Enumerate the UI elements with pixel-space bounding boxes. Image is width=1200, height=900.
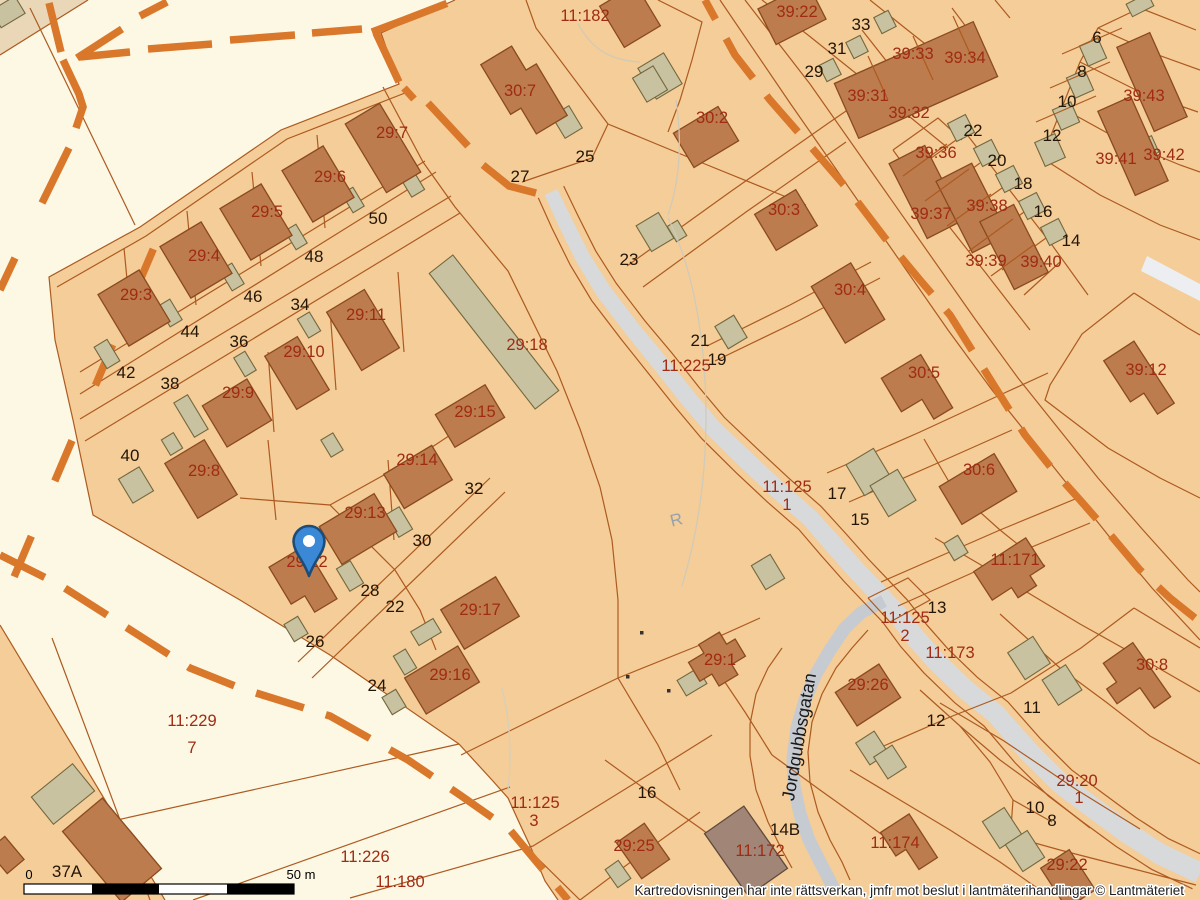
svg-text:39:31: 39:31 [847, 87, 888, 105]
svg-text:29:22: 29:22 [1046, 856, 1087, 874]
svg-text:30:4: 30:4 [834, 281, 866, 299]
svg-text:39:43: 39:43 [1123, 87, 1164, 105]
svg-text:29:14: 29:14 [396, 451, 437, 469]
svg-text:27: 27 [511, 167, 530, 186]
svg-text:30:8: 30:8 [1136, 656, 1168, 674]
svg-text:39:41: 39:41 [1095, 150, 1136, 168]
svg-text:26: 26 [306, 632, 325, 651]
svg-text:29:11: 29:11 [346, 306, 386, 324]
svg-text:39:40: 39:40 [1020, 253, 1061, 271]
svg-text:39:34: 39:34 [944, 49, 985, 67]
svg-text:29:15: 29:15 [454, 403, 495, 421]
svg-text:29:5: 29:5 [251, 203, 283, 221]
svg-text:12: 12 [927, 711, 946, 730]
svg-text:39:39: 39:39 [965, 252, 1006, 270]
svg-text:11:182: 11:182 [560, 7, 609, 25]
svg-text:20: 20 [988, 151, 1007, 170]
svg-text:29:4: 29:4 [188, 247, 220, 265]
svg-text:29:7: 29:7 [376, 124, 408, 142]
svg-text:18: 18 [1014, 174, 1033, 193]
svg-text:29:9: 29:9 [222, 384, 254, 402]
svg-text:50: 50 [369, 209, 388, 228]
svg-text:10: 10 [1058, 92, 1077, 111]
svg-text:25: 25 [576, 147, 595, 166]
svg-text:39:36: 39:36 [915, 144, 956, 162]
svg-text:30: 30 [413, 531, 432, 550]
svg-text:22: 22 [964, 121, 983, 140]
svg-text:22: 22 [386, 597, 405, 616]
svg-text:39:38: 39:38 [966, 197, 1007, 215]
svg-text:30:2: 30:2 [696, 109, 728, 127]
svg-text:46: 46 [244, 287, 263, 306]
svg-text:11:226: 11:226 [340, 848, 389, 866]
svg-text:39:42: 39:42 [1143, 146, 1184, 164]
svg-text:34: 34 [291, 295, 310, 314]
svg-text:29:17: 29:17 [459, 601, 500, 619]
svg-text:39:32: 39:32 [888, 104, 929, 122]
svg-text:6: 6 [1092, 28, 1101, 47]
svg-text:16: 16 [638, 783, 657, 802]
svg-text:31: 31 [828, 39, 847, 58]
svg-text:11:125: 11:125 [880, 609, 929, 627]
svg-text:29:25: 29:25 [613, 837, 654, 855]
svg-text:29:6: 29:6 [314, 168, 346, 186]
svg-text:42: 42 [117, 363, 136, 382]
svg-text:11:229: 11:229 [167, 712, 216, 730]
svg-text:7: 7 [187, 739, 196, 757]
svg-text:29:20: 29:20 [1056, 772, 1097, 790]
svg-text:1: 1 [782, 496, 791, 514]
svg-text:19: 19 [708, 350, 727, 369]
svg-text:11:172: 11:172 [735, 842, 784, 860]
svg-text:29:13: 29:13 [344, 504, 385, 522]
svg-text:2: 2 [900, 627, 909, 645]
svg-text:29:8: 29:8 [188, 462, 220, 480]
svg-text:30:5: 30:5 [908, 364, 940, 382]
svg-text:33: 33 [852, 15, 871, 34]
svg-text:11:180: 11:180 [375, 873, 424, 891]
svg-text:14B: 14B [770, 820, 800, 839]
svg-text:29:18: 29:18 [506, 336, 547, 354]
svg-text:1: 1 [1074, 789, 1083, 807]
svg-text:11:174: 11:174 [870, 834, 919, 852]
svg-text:11:125: 11:125 [762, 478, 811, 496]
svg-text:17: 17 [828, 484, 847, 503]
svg-text:11:125: 11:125 [510, 794, 559, 812]
svg-text:37A: 37A [52, 862, 83, 881]
svg-text:11:173: 11:173 [925, 644, 974, 662]
svg-text:29:3: 29:3 [120, 286, 152, 304]
svg-text:24: 24 [368, 676, 387, 695]
svg-text:38: 38 [161, 374, 180, 393]
svg-text:44: 44 [181, 322, 200, 341]
svg-text:21: 21 [691, 331, 710, 350]
svg-text:8: 8 [1047, 811, 1056, 830]
svg-text:39:33: 39:33 [892, 45, 933, 63]
svg-text:28: 28 [361, 581, 380, 600]
svg-text:8: 8 [1077, 62, 1086, 81]
svg-text:11: 11 [1023, 698, 1041, 717]
svg-text:12: 12 [1043, 126, 1062, 145]
svg-text:29:26: 29:26 [847, 676, 888, 694]
svg-text:29:16: 29:16 [429, 666, 470, 684]
svg-text:30:3: 30:3 [768, 201, 800, 219]
svg-text:39:22: 39:22 [776, 3, 817, 21]
svg-text:11:171: 11:171 [990, 551, 1039, 569]
svg-text:13: 13 [928, 598, 947, 617]
svg-text:10: 10 [1026, 798, 1045, 817]
svg-text:Kartredovisningen har inte rät: Kartredovisningen har inte rättsverkan, … [635, 883, 1185, 898]
svg-text:29:10: 29:10 [283, 343, 324, 361]
svg-text:39:12: 39:12 [1125, 361, 1166, 379]
svg-text:30:7: 30:7 [504, 82, 536, 100]
svg-text:23: 23 [620, 250, 639, 269]
svg-text:40: 40 [121, 446, 140, 465]
svg-text:32: 32 [465, 479, 484, 498]
svg-text:16: 16 [1034, 202, 1053, 221]
svg-text:39:37: 39:37 [910, 205, 951, 223]
svg-text:48: 48 [305, 247, 324, 266]
svg-text:3: 3 [529, 812, 538, 830]
svg-text:0: 0 [25, 867, 32, 882]
svg-text:29:1: 29:1 [704, 651, 736, 669]
svg-text:50 m: 50 m [287, 867, 316, 882]
svg-text:15: 15 [851, 510, 870, 529]
svg-text:14: 14 [1062, 231, 1081, 250]
svg-text:30:6: 30:6 [963, 461, 995, 479]
svg-text:36: 36 [230, 332, 249, 351]
svg-text:29: 29 [805, 62, 824, 81]
svg-text:11:225: 11:225 [661, 357, 710, 375]
